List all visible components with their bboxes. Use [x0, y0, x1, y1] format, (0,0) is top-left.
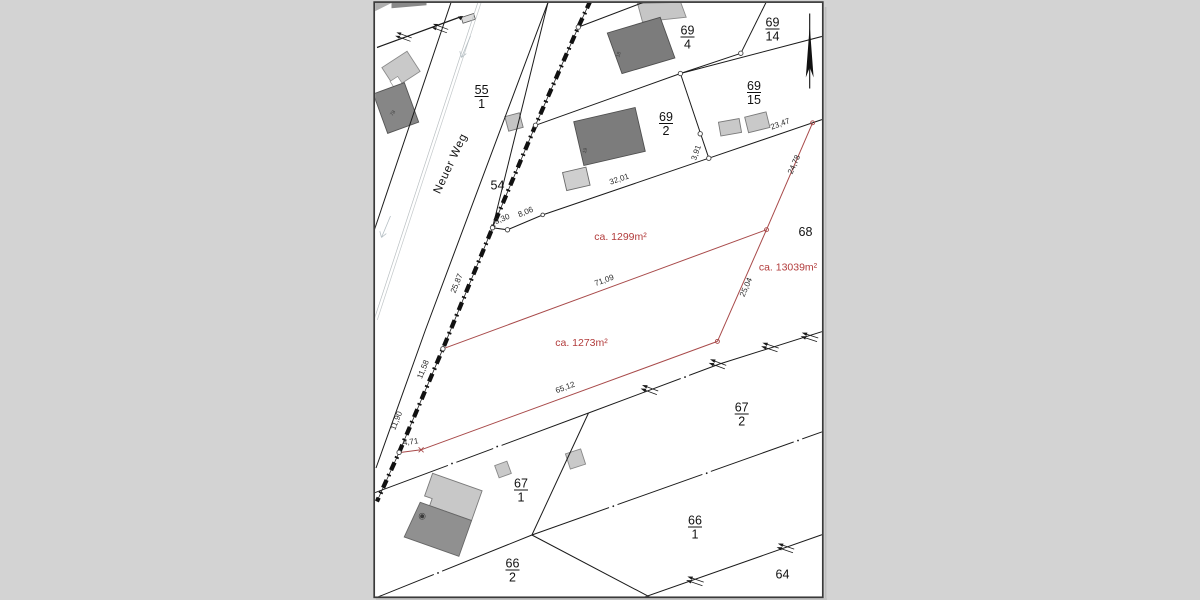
svg-text:54: 54: [491, 179, 505, 193]
svg-text:69: 69: [747, 79, 761, 93]
svg-text:14: 14: [766, 29, 780, 43]
svg-text:55: 55: [475, 83, 489, 97]
svg-text:66: 66: [506, 556, 520, 570]
svg-text:68: 68: [799, 225, 813, 239]
svg-text:1: 1: [692, 527, 699, 541]
svg-text:1: 1: [518, 490, 525, 504]
svg-text:1: 1: [478, 97, 485, 111]
svg-text:2: 2: [509, 570, 516, 584]
svg-text:2: 2: [663, 124, 670, 138]
svg-text:67: 67: [735, 400, 749, 414]
svg-text:69: 69: [659, 110, 673, 124]
svg-text:ca. 1273m²: ca. 1273m²: [555, 337, 608, 349]
svg-text:15: 15: [747, 93, 761, 107]
svg-text:64: 64: [776, 568, 790, 582]
svg-text:67: 67: [514, 476, 528, 490]
svg-text:69: 69: [766, 15, 780, 29]
svg-text:ca. 13039m²: ca. 13039m²: [759, 262, 818, 274]
svg-text:ca. 1299m²: ca. 1299m²: [594, 231, 647, 243]
svg-text:2: 2: [738, 414, 745, 428]
svg-text:4: 4: [684, 37, 691, 51]
svg-text:69: 69: [681, 23, 695, 37]
svg-text:66: 66: [688, 513, 702, 527]
